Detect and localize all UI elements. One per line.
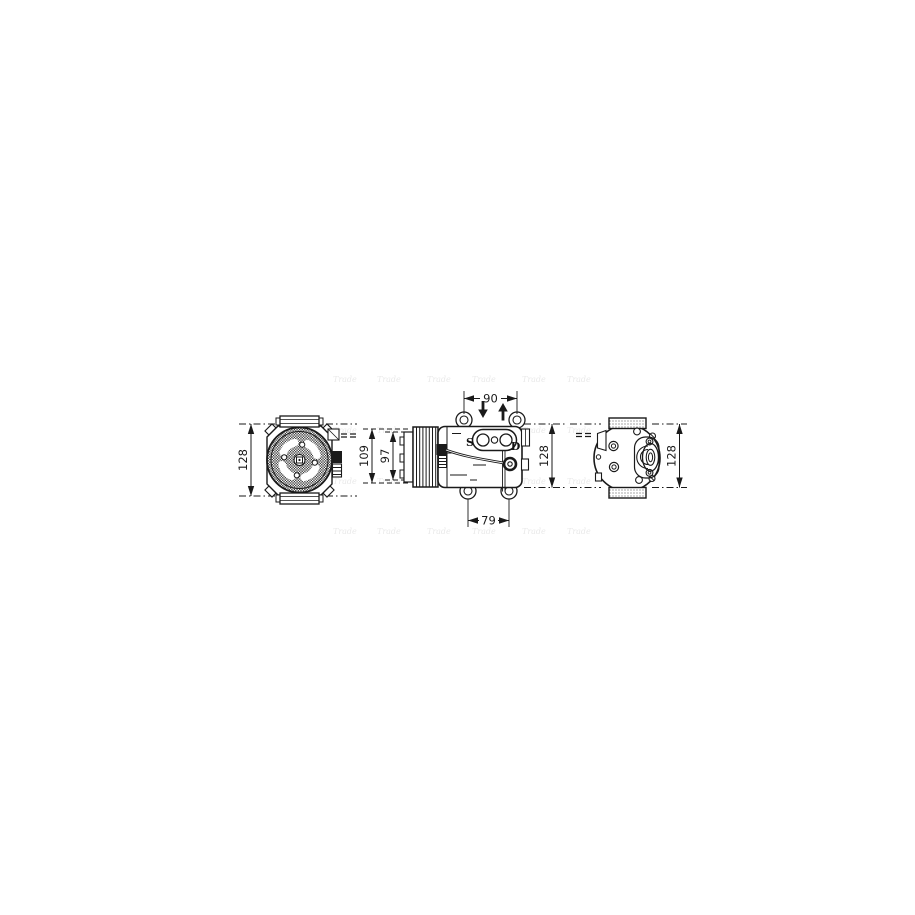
watermark-text: Trade	[522, 527, 546, 536]
watermark-text: Trade	[427, 375, 451, 384]
watermark-text: Trade	[567, 375, 591, 384]
dim-label-front-height: 128	[236, 449, 250, 471]
watermark-text: Trade	[472, 527, 496, 536]
electrical-connector	[437, 444, 448, 455]
watermark-text: Trade	[333, 527, 357, 536]
dim-label-side-height: 128	[537, 445, 551, 467]
watermark-text: Trade	[333, 477, 357, 486]
top-mount-plate	[276, 416, 323, 427]
watermark-text: Trade	[472, 375, 496, 384]
bottom-mount-band	[609, 488, 646, 499]
suction-port-label: S	[466, 436, 474, 449]
dim-label-rear-height: 128	[665, 445, 679, 467]
watermark-text: Trade	[377, 426, 401, 435]
watermark-text: Trade	[427, 527, 451, 536]
watermark-text: Trade	[522, 477, 546, 486]
dim-label-side-overall-dia: 109	[357, 445, 371, 467]
watermark-text: Trade	[377, 375, 401, 384]
belt-groove-stack	[400, 427, 438, 487]
electrical-connector	[332, 451, 342, 463]
left-tab	[598, 431, 607, 451]
watermark-text: Trade	[522, 375, 546, 384]
watermark-text: Trade	[567, 527, 591, 536]
cable-fitting	[504, 458, 516, 470]
dim-label-side-bottom-width: 79	[481, 514, 496, 528]
top-mount-band	[609, 418, 646, 429]
watermark-text: Trade	[377, 477, 401, 486]
technical-drawing-page: Trade Trade Trade Trade Trade Trade Trad…	[0, 0, 915, 915]
watermark-text: Trade	[567, 477, 591, 486]
compressor-three-view-drawing: Trade Trade Trade Trade Trade Trade Trad…	[0, 0, 915, 915]
dim-label-side-top-width: 90	[483, 392, 498, 406]
watermark-text: Trade	[377, 527, 401, 536]
pulley-face	[267, 428, 332, 493]
dim-label-side-pulley-dia: 97	[378, 449, 392, 464]
bottom-mount-plate	[276, 493, 323, 504]
watermark-text: Trade	[333, 375, 357, 384]
discharge-port-label: D	[511, 440, 521, 453]
